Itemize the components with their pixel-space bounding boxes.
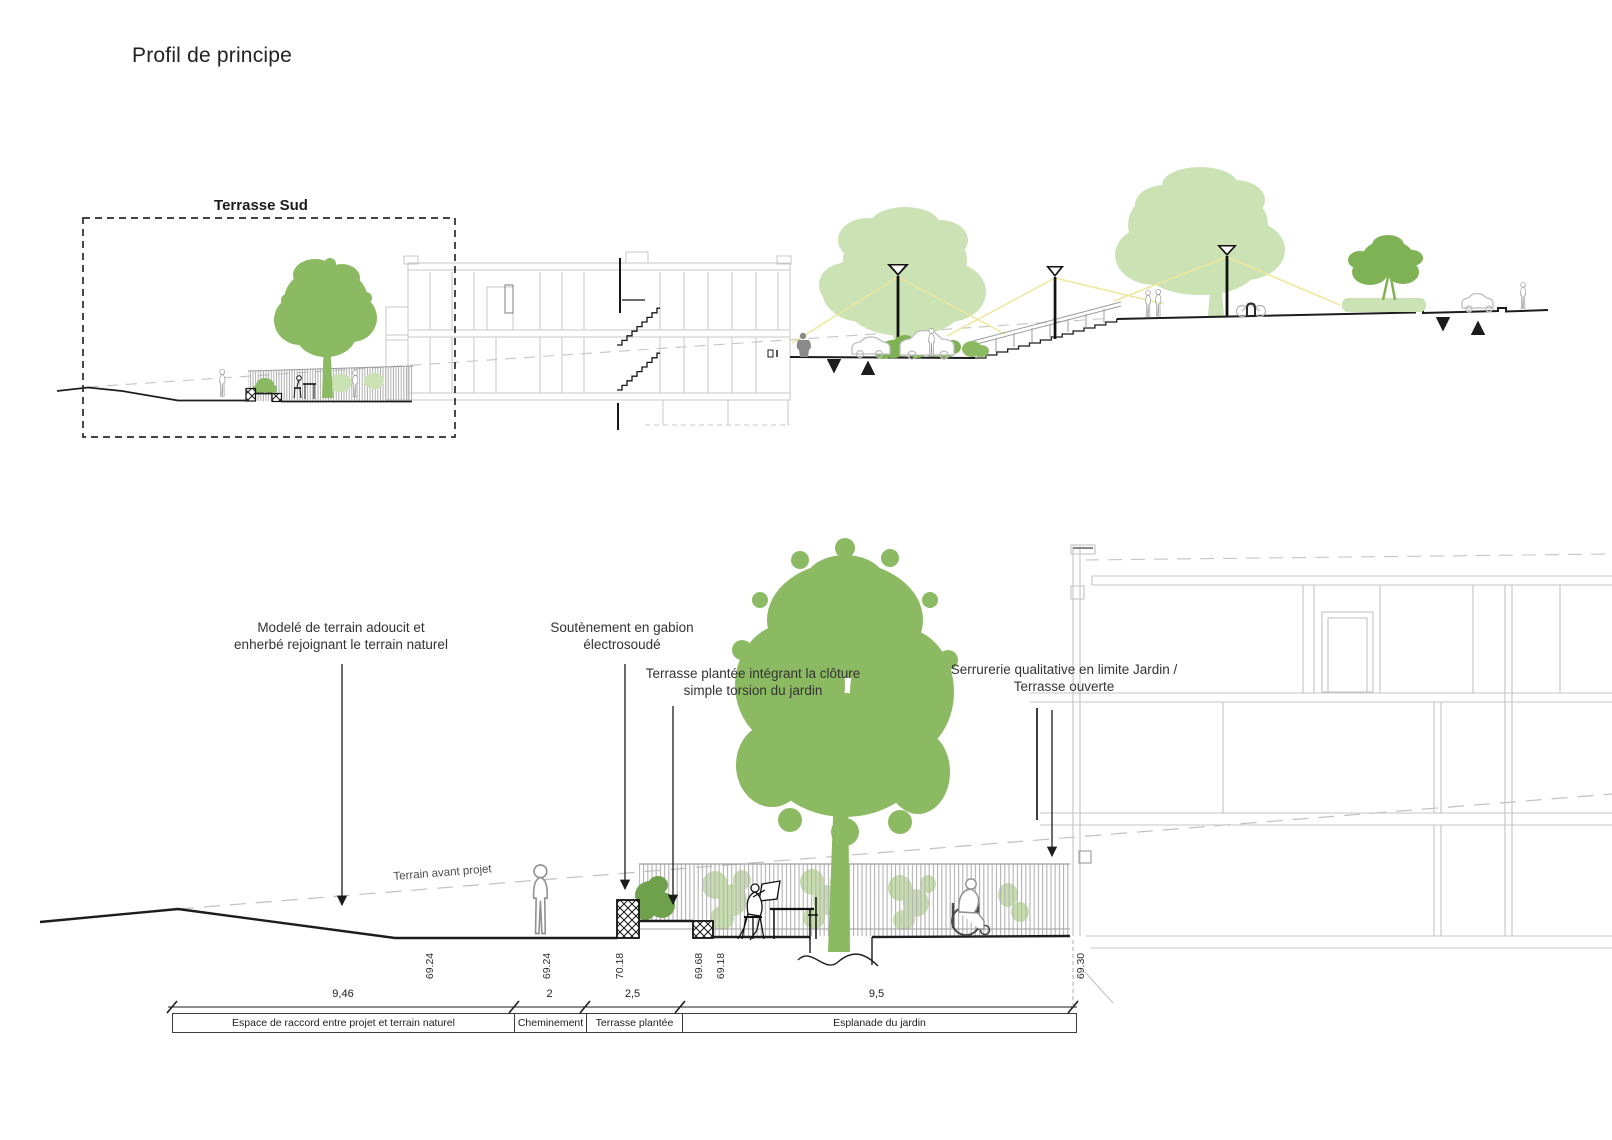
light-tree-2 [1115, 167, 1285, 316]
elevation-69-24-b: 69.24 [541, 943, 553, 989]
dimension-2: 2 [514, 988, 585, 1000]
zone-cheminement: Cheminement [515, 1013, 587, 1033]
terrasse-sud-label: Terrasse Sud [161, 197, 361, 214]
lower-building-section [1030, 545, 1612, 1005]
person-standing-lower [534, 865, 548, 934]
zone-espace-raccord: Espace de raccord entre projet et terrai… [172, 1013, 515, 1033]
annotation-terrasse-line2: simple torsion du jardin [618, 683, 888, 700]
upper-right-scene [768, 167, 1548, 374]
upper-building-section [386, 252, 791, 425]
terrasse-sud-mini-scene [57, 218, 455, 437]
terrasse-sud-dashed-box [83, 218, 455, 437]
tree-pit-break-line [798, 954, 878, 966]
page-title: Profil de principe [132, 44, 292, 68]
annotation-terrasse-line1: Terrasse plantée intégrant la clôture [618, 666, 888, 683]
elevation-69-18: 69.18 [715, 943, 727, 989]
annotation-modele-line2: enherbé rejoignant le terrain naturel [201, 637, 481, 654]
annotation-soutenement-line2: électrosoudé [522, 637, 722, 654]
elevation-69-30: 69.30 [1075, 943, 1087, 989]
mini-person-standing-left [220, 369, 225, 396]
annotation-modele: Modelé de terrain adoucit et enherbé rej… [201, 620, 481, 653]
person-pair-2 [1156, 289, 1161, 316]
dimension-2-5: 2,5 [585, 988, 680, 1000]
upper-terrain-dashed-line [88, 318, 1113, 387]
annotation-soutenement: Soutènement en gabion électrosoudé [522, 620, 722, 653]
profile-drawing-sheet: Profil de principe Terrasse Sud Modelé d… [0, 0, 1612, 1140]
lower-detail-section [40, 538, 1612, 1013]
person-far-right [1521, 282, 1526, 308]
zone-terrasse-plantee: Terrasse plantée [587, 1013, 683, 1033]
dimension-9-5: 9,5 [680, 988, 1073, 1000]
annotation-soutenement-line1: Soutènement en gabion [522, 620, 722, 637]
annotation-terrasse-plantee: Terrasse plantée intégrant la clôture si… [618, 666, 888, 699]
annotation-modele-line1: Modelé de terrain adoucit et [201, 620, 481, 637]
light-tree-1 [819, 207, 986, 357]
zone-table: Espace de raccord entre projet et terrai… [172, 1013, 1077, 1033]
annotation-serrurerie-line1: Serrurerie qualitative en limite Jardin … [919, 662, 1209, 679]
dimension-9-46: 9,46 [172, 988, 514, 1000]
section-drawing-canvas [0, 0, 1612, 1140]
annotation-serrurerie: Serrurerie qualitative en limite Jardin … [919, 662, 1209, 695]
annotation-serrurerie-line2: Terrasse ouverte [919, 679, 1209, 696]
person-pair-1 [1146, 290, 1151, 316]
dimension-line [167, 1001, 1078, 1013]
bike-rack [1237, 304, 1266, 317]
upper-building-stairs [617, 258, 660, 430]
street-lamp-2 [1046, 266, 1064, 339]
elevation-70-18: 70.18 [614, 943, 626, 989]
zone-esplanade: Esplanade du jardin [683, 1013, 1077, 1033]
elevation-69-68: 69.68 [693, 943, 705, 989]
elevation-69-24-a: 69.24 [424, 943, 436, 989]
medium-tree-right [1342, 235, 1426, 312]
seated-figure-dark [797, 333, 811, 357]
